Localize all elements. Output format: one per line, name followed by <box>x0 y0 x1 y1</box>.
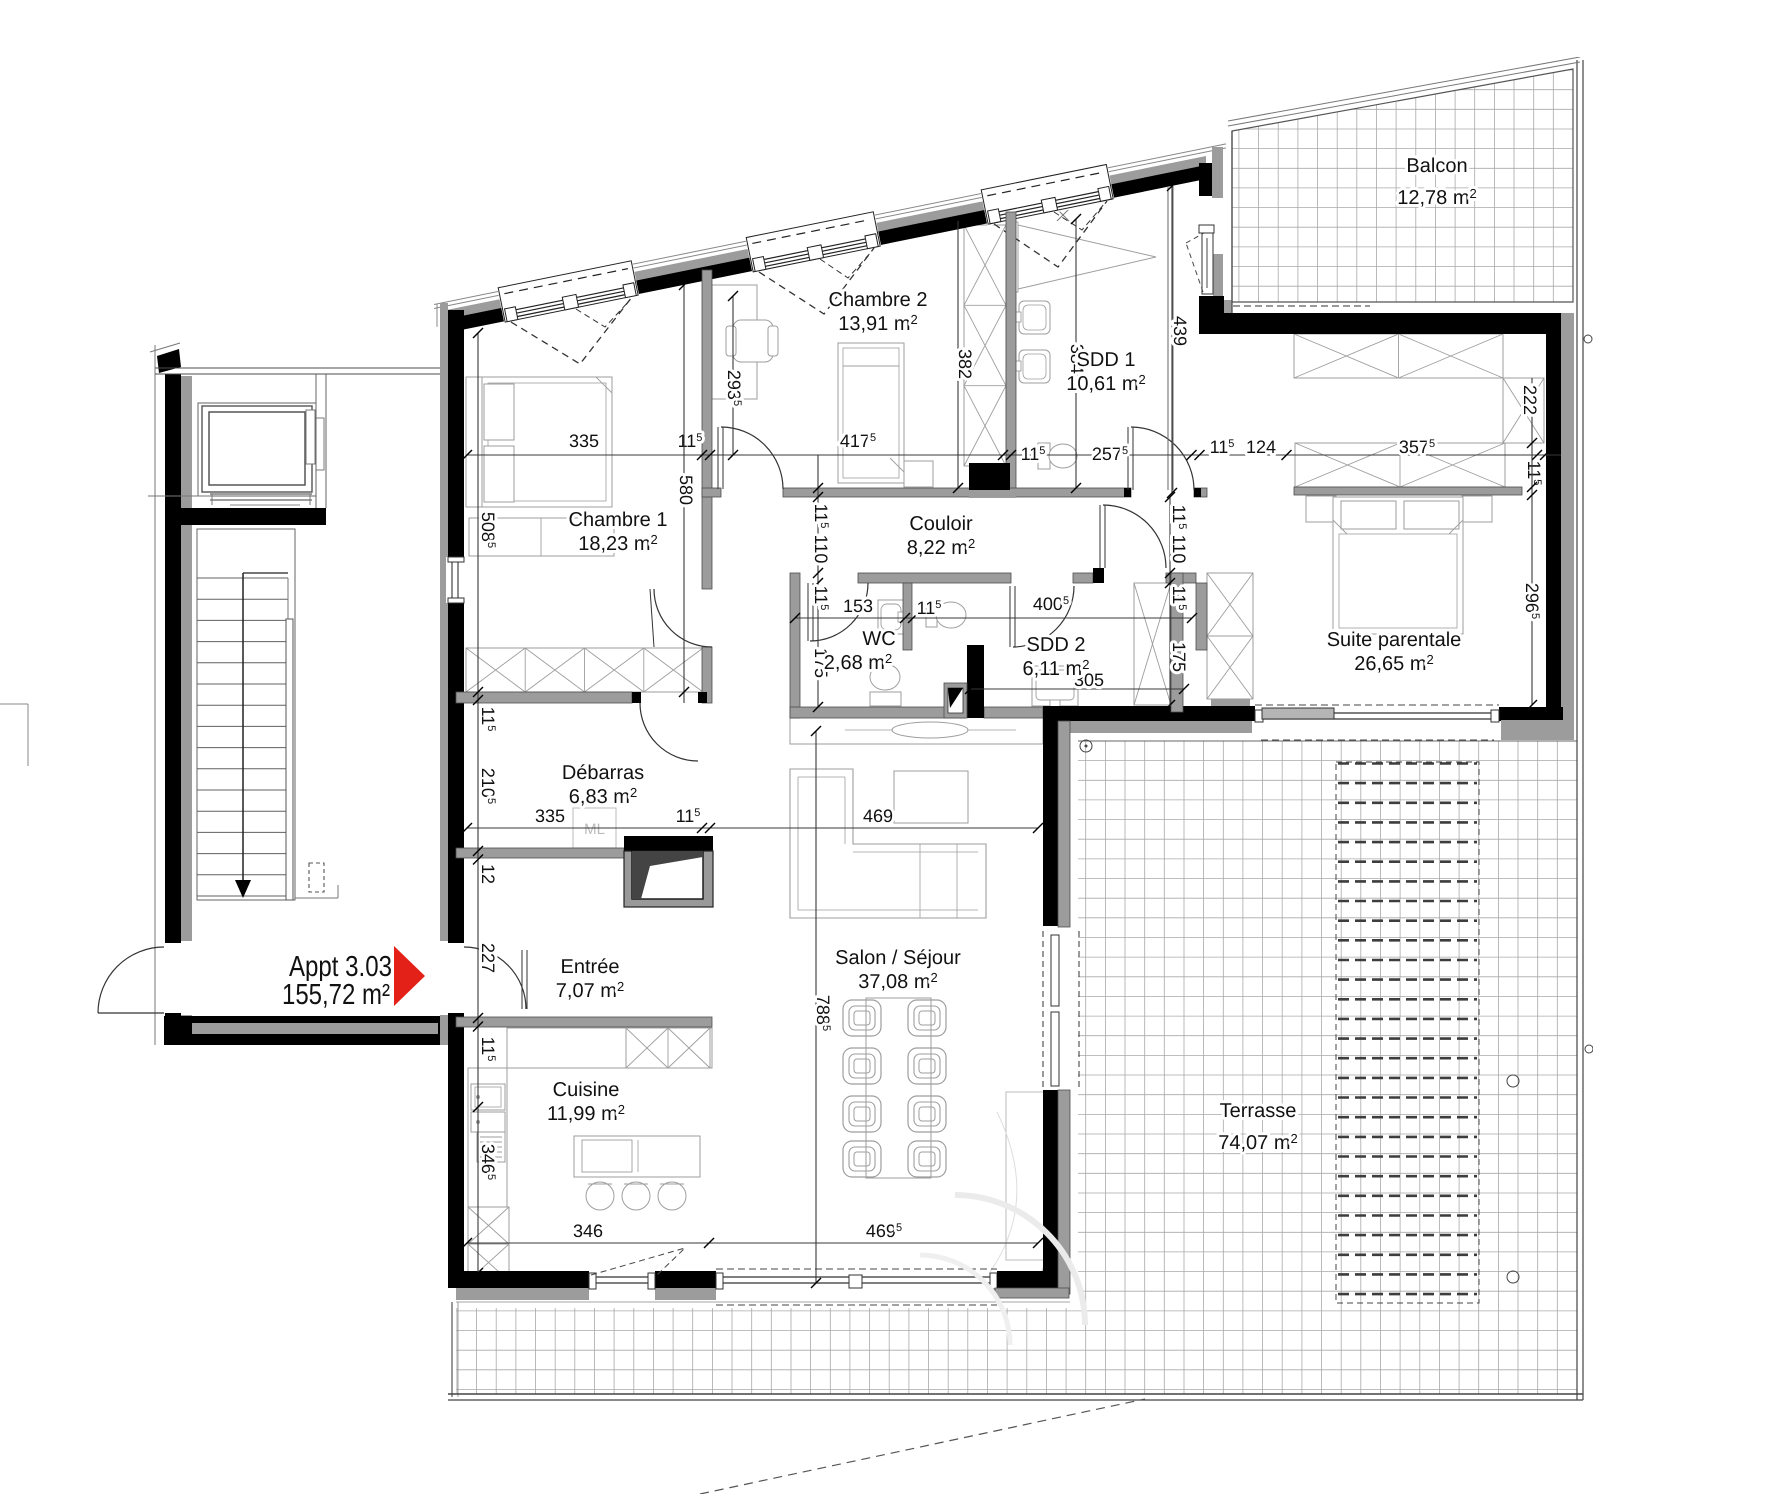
svg-text:439: 439 <box>1170 316 1190 346</box>
svg-text:6,83 m2: 6,83 m2 <box>569 785 637 808</box>
svg-text:13,91 m2: 13,91 m2 <box>838 312 918 335</box>
svg-text:12,78 m2: 12,78 m2 <box>1397 186 1477 209</box>
svg-text:110: 110 <box>811 535 831 564</box>
svg-text:469: 469 <box>863 806 893 826</box>
svg-text:Couloir: Couloir <box>909 513 973 535</box>
svg-text:74,07 m2: 74,07 m2 <box>1218 1131 1298 1154</box>
svg-text:2,68 m2: 2,68 m2 <box>824 651 892 674</box>
svg-text:124: 124 <box>1246 437 1276 457</box>
svg-text:WC: WC <box>862 628 895 650</box>
svg-text:Entrée: Entrée <box>561 956 620 978</box>
svg-text:Suite parentale: Suite parentale <box>1327 629 1462 651</box>
svg-text:18,23 m2: 18,23 m2 <box>578 532 658 555</box>
svg-text:Chambre 2: Chambre 2 <box>829 289 928 311</box>
svg-text:Débarras: Débarras <box>562 762 644 784</box>
svg-text:227: 227 <box>478 943 498 973</box>
svg-text:175: 175 <box>1169 642 1189 672</box>
svg-text:7,07 m2: 7,07 m2 <box>556 979 624 1002</box>
svg-text:155,72 m²: 155,72 m² <box>282 979 390 1011</box>
svg-text:110: 110 <box>1169 535 1189 564</box>
svg-text:SDD 2: SDD 2 <box>1027 634 1086 656</box>
svg-text:SDD 1: SDD 1 <box>1077 349 1136 371</box>
svg-text:335: 335 <box>535 806 565 826</box>
svg-text:222: 222 <box>1520 385 1540 415</box>
svg-text:11,99 m2: 11,99 m2 <box>547 1102 625 1125</box>
svg-text:Salon / Séjour: Salon / Séjour <box>835 947 961 969</box>
svg-text:8,22 m2: 8,22 m2 <box>907 536 975 559</box>
svg-text:6,11 m2: 6,11 m2 <box>1023 657 1090 680</box>
svg-text:Balcon: Balcon <box>1406 155 1467 177</box>
svg-text:12: 12 <box>478 864 498 884</box>
svg-text:10,61 m2: 10,61 m2 <box>1066 372 1146 395</box>
svg-text:153: 153 <box>843 596 873 616</box>
svg-text:26,65 m2: 26,65 m2 <box>1354 652 1434 675</box>
svg-text:ML: ML <box>584 821 605 838</box>
svg-text:580: 580 <box>676 475 696 505</box>
svg-text:Cuisine: Cuisine <box>553 1079 620 1101</box>
svg-text:346: 346 <box>573 1221 603 1241</box>
svg-text:382: 382 <box>955 349 975 379</box>
svg-text:335: 335 <box>569 431 599 451</box>
svg-text:Terrasse: Terrasse <box>1220 1100 1297 1122</box>
svg-text:Chambre 1: Chambre 1 <box>569 509 668 531</box>
svg-text:37,08 m2: 37,08 m2 <box>858 970 938 993</box>
